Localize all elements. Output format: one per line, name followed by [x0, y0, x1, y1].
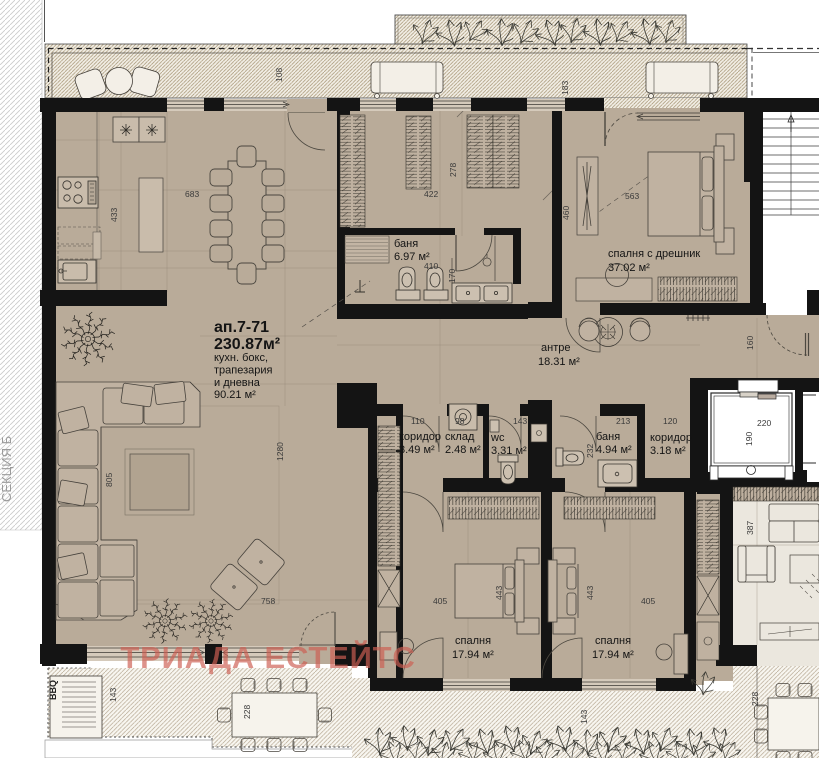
svg-text:422: 422 — [424, 189, 438, 199]
svg-text:108: 108 — [274, 68, 284, 82]
svg-text:143: 143 — [513, 416, 527, 426]
svg-text:387: 387 — [745, 521, 755, 535]
svg-text:433: 433 — [109, 208, 119, 222]
svg-text:37.02 м²: 37.02 м² — [608, 262, 650, 274]
svg-text:120: 120 — [663, 416, 677, 426]
svg-text:коридор: коридор — [399, 431, 441, 443]
svg-text:спалня: спалня — [595, 635, 631, 647]
svg-text:160: 160 — [745, 336, 755, 350]
svg-text:228: 228 — [242, 705, 252, 719]
svg-text:443: 443 — [494, 586, 504, 600]
svg-text:213: 213 — [616, 416, 630, 426]
svg-text:и дневна: и дневна — [214, 377, 261, 389]
svg-text:антре: антре — [541, 342, 570, 354]
svg-text:18.31 м²: 18.31 м² — [538, 356, 580, 368]
svg-text:143: 143 — [108, 688, 118, 702]
svg-text:баня: баня — [596, 431, 620, 443]
svg-text:спалня с дрешник: спалня с дрешник — [608, 248, 700, 260]
svg-text:805: 805 — [104, 473, 114, 487]
svg-text:98: 98 — [455, 416, 465, 426]
svg-text:СЕКЦИЯ Б: СЕКЦИЯ Б — [0, 436, 14, 502]
svg-text:183: 183 — [560, 81, 570, 95]
svg-text:3.18 м²: 3.18 м² — [650, 445, 686, 457]
svg-text:wc: wc — [490, 432, 505, 444]
svg-text:110: 110 — [411, 416, 425, 426]
svg-text:563: 563 — [625, 191, 639, 201]
svg-text:90.21 м²: 90.21 м² — [214, 389, 256, 401]
svg-text:143: 143 — [579, 710, 589, 724]
svg-text:спалня: спалня — [455, 635, 491, 647]
svg-text:17.94 м²: 17.94 м² — [592, 649, 634, 661]
svg-text:232: 232 — [585, 444, 595, 458]
svg-text:758: 758 — [261, 596, 275, 606]
svg-text:170: 170 — [447, 269, 457, 283]
svg-text:683: 683 — [185, 189, 199, 199]
svg-text:410: 410 — [424, 261, 438, 271]
svg-text:ТРИАДА ЕСТЕЙТС: ТРИАДА ЕСТЕЙТС — [120, 639, 415, 675]
svg-text:443: 443 — [585, 586, 595, 600]
svg-text:склад: склад — [445, 431, 475, 443]
svg-text:1280: 1280 — [275, 442, 285, 461]
svg-text:405: 405 — [433, 596, 447, 606]
svg-text:230.87м²: 230.87м² — [214, 336, 280, 353]
svg-text:ап.7-71: ап.7-71 — [214, 319, 269, 336]
svg-text:4.94 м²: 4.94 м² — [596, 444, 632, 456]
svg-text:190: 190 — [744, 432, 754, 446]
svg-text:трапезария: трапезария — [214, 365, 273, 377]
svg-text:2.48 м²: 2.48 м² — [445, 444, 481, 456]
svg-text:3.49 м²: 3.49 м² — [399, 444, 435, 456]
svg-text:228: 228 — [750, 692, 760, 706]
svg-text:17.94 м²: 17.94 м² — [452, 649, 494, 661]
svg-text:278: 278 — [448, 163, 458, 177]
svg-text:405: 405 — [641, 596, 655, 606]
svg-text:3.31 м²: 3.31 м² — [491, 445, 527, 457]
svg-text:BBQ: BBQ — [48, 680, 58, 700]
svg-text:коридор: коридор — [650, 432, 692, 444]
svg-text:220: 220 — [757, 418, 771, 428]
svg-text:баня: баня — [394, 238, 418, 250]
svg-text:кухн. бокс,: кухн. бокс, — [214, 352, 268, 364]
svg-text:460: 460 — [561, 206, 571, 220]
